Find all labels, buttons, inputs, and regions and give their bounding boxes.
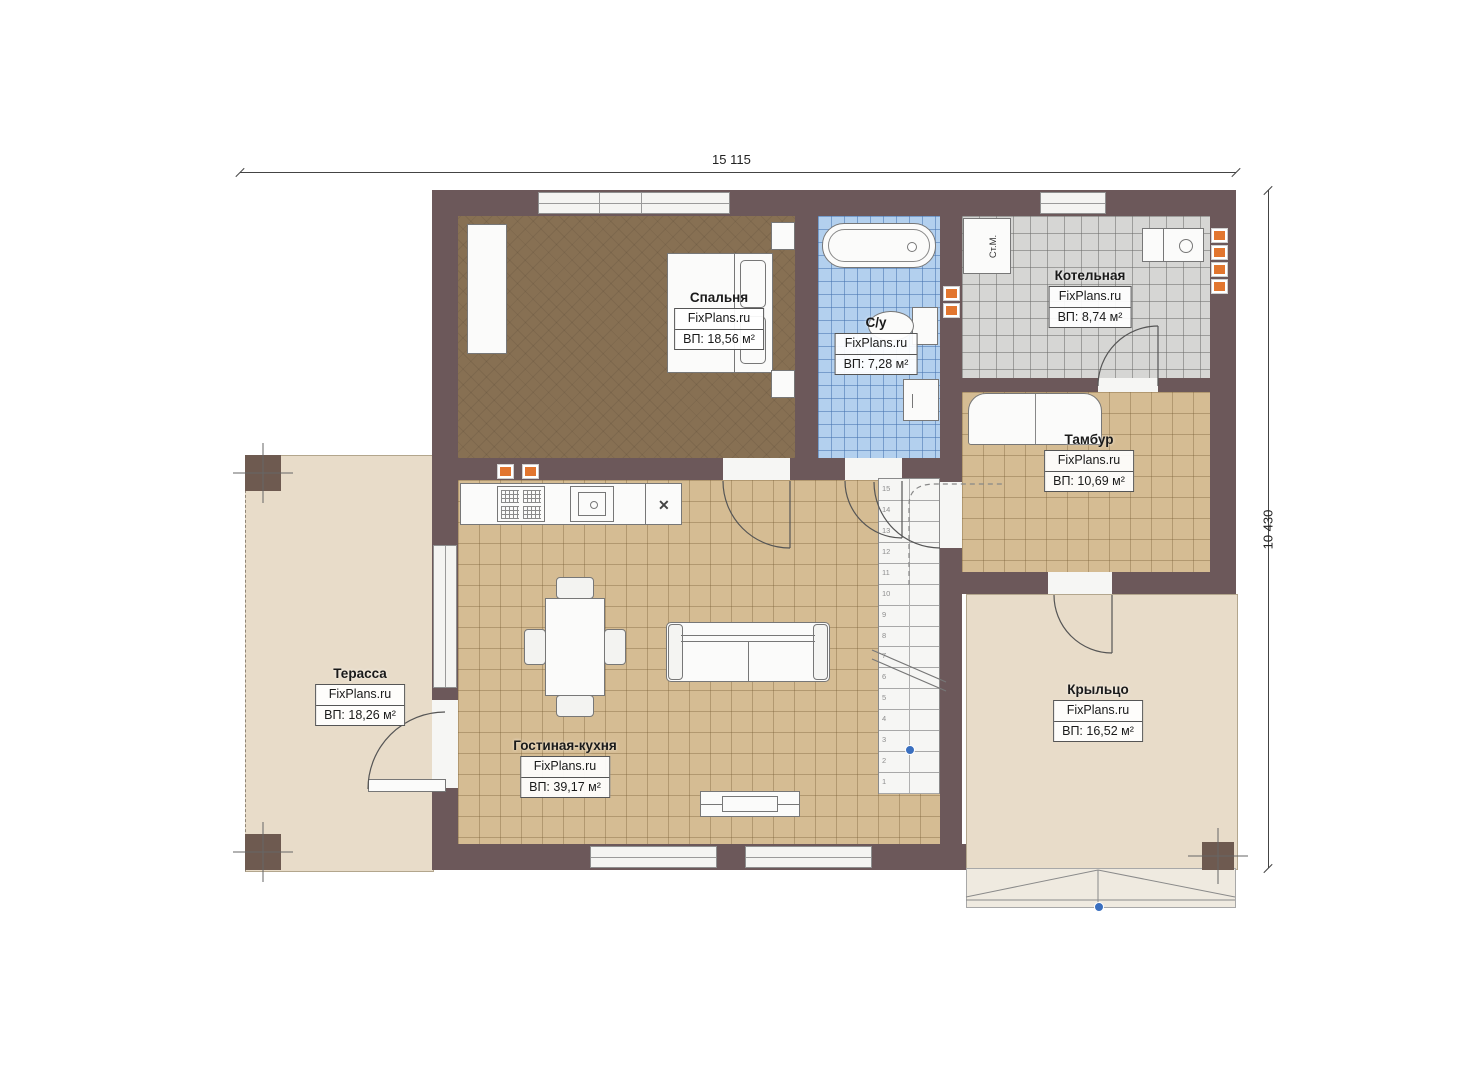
brand-text: FixPlans.ru [521, 757, 609, 777]
room-info-box: FixPlans.ru ВП: 39,17 м² [520, 756, 610, 798]
room-label-bedroom: Спальня FixPlans.ru ВП: 18,56 м² [674, 290, 764, 350]
nightstand [771, 370, 795, 398]
burner-icon [523, 506, 541, 519]
kitchen-unit-x: ✕ [645, 483, 682, 525]
chair [556, 577, 594, 599]
brand-text: FixPlans.ru [1050, 287, 1131, 307]
boiler-burner-icon [1179, 239, 1193, 253]
tv [722, 796, 778, 812]
stair-step: 1 [879, 772, 939, 794]
dining-table [545, 598, 605, 696]
window-bedroom [538, 192, 730, 214]
stair-step: 12 [879, 542, 939, 564]
door-opening-boiler [1098, 378, 1158, 392]
terrace-door-panel [368, 779, 446, 792]
sofa-back-line [681, 635, 815, 636]
area-text: ВП: 18,26 м² [316, 705, 404, 726]
vent-icon [498, 465, 513, 478]
door-opening-bedroom [723, 458, 790, 480]
burner-icon [501, 506, 519, 519]
door-opening-vestibule [940, 482, 962, 548]
dimension-width-label: 15 115 [712, 152, 751, 167]
burner-icon [523, 490, 541, 503]
room-label-boiler: Котельная FixPlans.ru ВП: 8,74 м² [1049, 268, 1132, 328]
area-text: ВП: 8,74 м² [1050, 307, 1131, 328]
washing-machine-label: Ст.М. [988, 235, 999, 258]
bathtub-drain [907, 242, 917, 252]
burner-icon [501, 490, 519, 503]
chair [524, 629, 546, 665]
wall-bathroom-boiler [940, 216, 962, 482]
door-opening-terrace [432, 700, 458, 788]
room-name: Гостиная-кухня [513, 738, 616, 753]
door-opening-bathroom [845, 458, 902, 480]
room-name: Тамбур [1044, 432, 1134, 447]
sink-drain-icon [590, 501, 598, 509]
wall-bedroom-living [790, 458, 845, 480]
window-mullion [599, 193, 600, 213]
stove [497, 486, 545, 522]
window-terrace [433, 545, 457, 688]
brand-text: FixPlans.ru [316, 685, 404, 705]
area-text: ВП: 18,56 м² [675, 329, 763, 350]
terrace-post [245, 834, 281, 870]
room-name: С/у [835, 315, 918, 330]
stair-step: 4 [879, 709, 939, 731]
vent-icon [944, 304, 959, 317]
brand-text: FixPlans.ru [1054, 701, 1142, 721]
sink-faucet [912, 394, 913, 408]
sofa-arm [668, 624, 683, 680]
boiler-unit [1142, 228, 1204, 262]
stair-step: 6 [879, 667, 939, 689]
room-name: Терасса [315, 666, 405, 681]
vent-icon [523, 465, 538, 478]
area-text: ВП: 16,52 м² [1054, 721, 1142, 742]
stair-step: 8 [879, 626, 939, 648]
kitchen-sink-basin [578, 492, 606, 516]
window-living-2 [745, 846, 872, 868]
terrace-floor [245, 455, 434, 872]
window-living-1 [590, 846, 717, 868]
brand-text: FixPlans.ru [675, 309, 763, 329]
vent-icon [1212, 246, 1227, 259]
stair-step: 5 [879, 688, 939, 710]
porch-post [1202, 842, 1234, 870]
stair-step: 14 [879, 500, 939, 522]
sofa-cushion-divider [748, 641, 749, 681]
vent-icon [1212, 229, 1227, 242]
wall-boiler-vestibule [1158, 378, 1210, 392]
room-name: Спальня [674, 290, 764, 305]
washing-machine: Ст.М. [963, 218, 1011, 274]
wall-bedroom-bathroom [795, 216, 818, 458]
window-mullion [641, 193, 642, 213]
area-text: ВП: 7,28 м² [836, 354, 917, 375]
wall-vestibule-porch [1112, 572, 1236, 594]
stair-marker-dot [905, 745, 915, 755]
wall-vestibule-porch [962, 572, 1048, 594]
room-label-terrace: Терасса FixPlans.ru ВП: 18,26 м² [315, 666, 405, 726]
wall-bedroom-living [902, 458, 962, 480]
porch-marker-dot [1094, 902, 1104, 912]
wall-living-vestibule [940, 548, 962, 844]
room-info-box: FixPlans.ru ВП: 18,56 м² [674, 308, 764, 350]
room-label-porch: Крыльцо FixPlans.ru ВП: 16,52 м² [1053, 682, 1143, 742]
stair-step: 9 [879, 605, 939, 627]
chair [604, 629, 626, 665]
vent-icon [1212, 280, 1227, 293]
brand-text: FixPlans.ru [1045, 451, 1133, 471]
room-label-vestibule: Тамбур FixPlans.ru ВП: 10,69 м² [1044, 432, 1134, 492]
bathroom-sink [903, 379, 939, 421]
stair-step: 11 [879, 563, 939, 585]
nightstand [771, 222, 795, 250]
room-info-box: FixPlans.ru ВП: 10,69 м² [1044, 450, 1134, 492]
room-info-box: FixPlans.ru ВП: 18,26 м² [315, 684, 405, 726]
dimension-line-top [240, 172, 1236, 173]
room-name: Котельная [1049, 268, 1132, 283]
stair-step: 7 [879, 646, 939, 668]
sofa [666, 622, 830, 682]
floor-plan-canvas: 15 115 10 430 [0, 0, 1474, 1080]
area-text: ВП: 39,17 м² [521, 777, 609, 798]
terrace-post [245, 455, 281, 491]
chair [556, 695, 594, 717]
vent-icon [1212, 263, 1227, 276]
boiler-divider [1163, 229, 1164, 261]
door-opening-entrance [1048, 572, 1112, 594]
brand-text: FixPlans.ru [836, 334, 917, 354]
window-boiler [1040, 192, 1106, 214]
sofa-arm [813, 624, 828, 680]
room-info-box: FixPlans.ru ВП: 16,52 м² [1053, 700, 1143, 742]
kitchen-sink [570, 486, 614, 522]
wall-boiler-vestibule [962, 378, 1098, 392]
room-label-living-kitchen: Гостиная-кухня FixPlans.ru ВП: 39,17 м² [513, 738, 616, 798]
vent-icon [944, 287, 959, 300]
dimension-height-label: 10 430 [1261, 500, 1276, 560]
room-name: Крыльцо [1053, 682, 1143, 697]
bedroom-wardrobe [467, 224, 507, 354]
room-info-box: FixPlans.ru ВП: 7,28 м² [835, 333, 918, 375]
stair-step: 10 [879, 584, 939, 606]
room-info-box: FixPlans.ru ВП: 8,74 м² [1049, 286, 1132, 328]
stair-step: 15 [879, 479, 939, 501]
stair-step: 13 [879, 521, 939, 543]
bathtub [822, 223, 936, 268]
area-text: ВП: 10,69 м² [1045, 471, 1133, 492]
x-mark-icon: ✕ [658, 498, 670, 512]
room-label-bathroom: С/у FixPlans.ru ВП: 7,28 м² [835, 315, 918, 375]
